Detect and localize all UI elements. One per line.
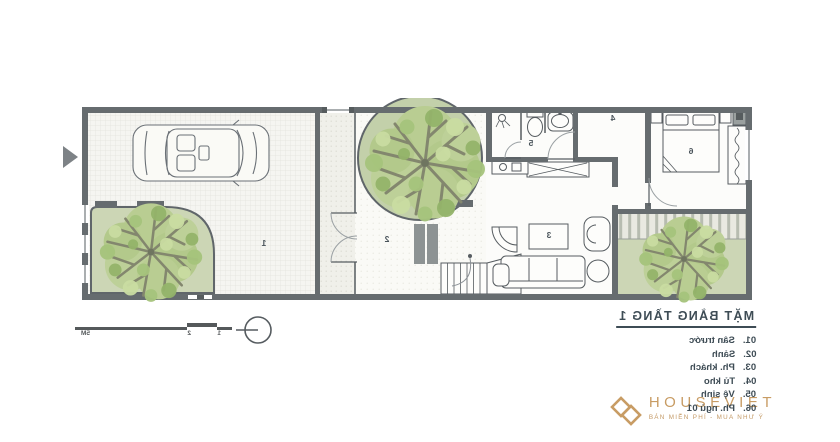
scale-label-1: 1	[217, 330, 221, 337]
legend-item: 04. Tủ kho	[704, 376, 756, 387]
legend-label: Sảnh	[712, 349, 735, 360]
title-block: MẶT BẰNG TẦNG 1 01. Sân trước 02. Sảnh 0…	[526, 309, 756, 414]
scale-bar-segment	[187, 323, 217, 327]
stool	[493, 264, 509, 286]
legend-number: 02.	[743, 349, 756, 360]
legend-item: 06. Ph. ngủ 01	[687, 403, 756, 414]
legend-number: 06.	[743, 403, 756, 414]
room-label-front-yard: 1	[256, 238, 272, 248]
room-label-storage: 4	[605, 113, 621, 123]
gate-bottom	[188, 295, 212, 299]
car	[133, 120, 269, 186]
sink	[552, 115, 569, 128]
legend-label: Vệ sinh	[701, 389, 735, 400]
legend-item: 03. Ph. khách	[690, 362, 756, 373]
sofa	[501, 256, 585, 288]
toilet	[528, 118, 543, 137]
nightstand	[720, 112, 731, 123]
scale-bar: 1 2 5M	[75, 321, 232, 339]
legend-label: Ph. ngủ 01	[687, 403, 735, 414]
entry-arrow-icon	[63, 146, 78, 168]
legend-number: 03.	[743, 362, 756, 373]
floor-plan-page: 1 2 3 4 5 6 1 2 5M HOUSEVIET BÁN MIỄN PH…	[0, 0, 840, 442]
room-label-lobby: 2	[379, 234, 395, 244]
legend-item: 02. Sảnh	[712, 349, 756, 360]
scale-bar-segment	[75, 327, 187, 330]
window-left-2	[81, 235, 89, 253]
plan-title: MẶT BẰNG TẦNG 1	[616, 309, 756, 328]
room-label-bedroom: 6	[683, 146, 699, 156]
armchair	[584, 217, 610, 251]
legend-number: 01.	[743, 335, 756, 346]
legend-number: 05.	[743, 389, 756, 400]
porch-floor	[320, 113, 355, 294]
legend-item: 05. Vệ sinh	[701, 389, 756, 400]
legend-item: 01. Sân trước	[689, 335, 756, 346]
scale-label-5m: 5M	[81, 330, 90, 337]
floor-plan-drawing	[62, 98, 758, 318]
pillow	[666, 115, 688, 125]
pillow	[693, 115, 715, 125]
legend-label: Tủ kho	[704, 376, 735, 387]
room-label-bathroom: 5	[523, 138, 539, 148]
north-arrow-icon	[232, 313, 274, 347]
window-bedroom-right	[745, 130, 753, 180]
nightstand	[651, 112, 662, 123]
logo-tagline: BÁN MIỄN PHÍ - MUA NHƯ Ý	[649, 414, 776, 421]
wardrobe	[728, 126, 746, 184]
legend: 01. Sân trước 02. Sảnh 03. Ph. khách 04.…	[687, 335, 756, 414]
side-table	[587, 260, 609, 282]
window-left-1	[81, 205, 89, 223]
legend-number: 04.	[743, 376, 756, 387]
window-left-3	[81, 265, 89, 283]
room-label-living: 3	[541, 230, 557, 240]
scale-label-2: 2	[187, 330, 191, 337]
legend-label: Sân trước	[689, 335, 735, 346]
legend-label: Ph. khách	[690, 362, 735, 373]
window-porch-top	[322, 107, 354, 113]
hall-counter	[492, 160, 528, 174]
